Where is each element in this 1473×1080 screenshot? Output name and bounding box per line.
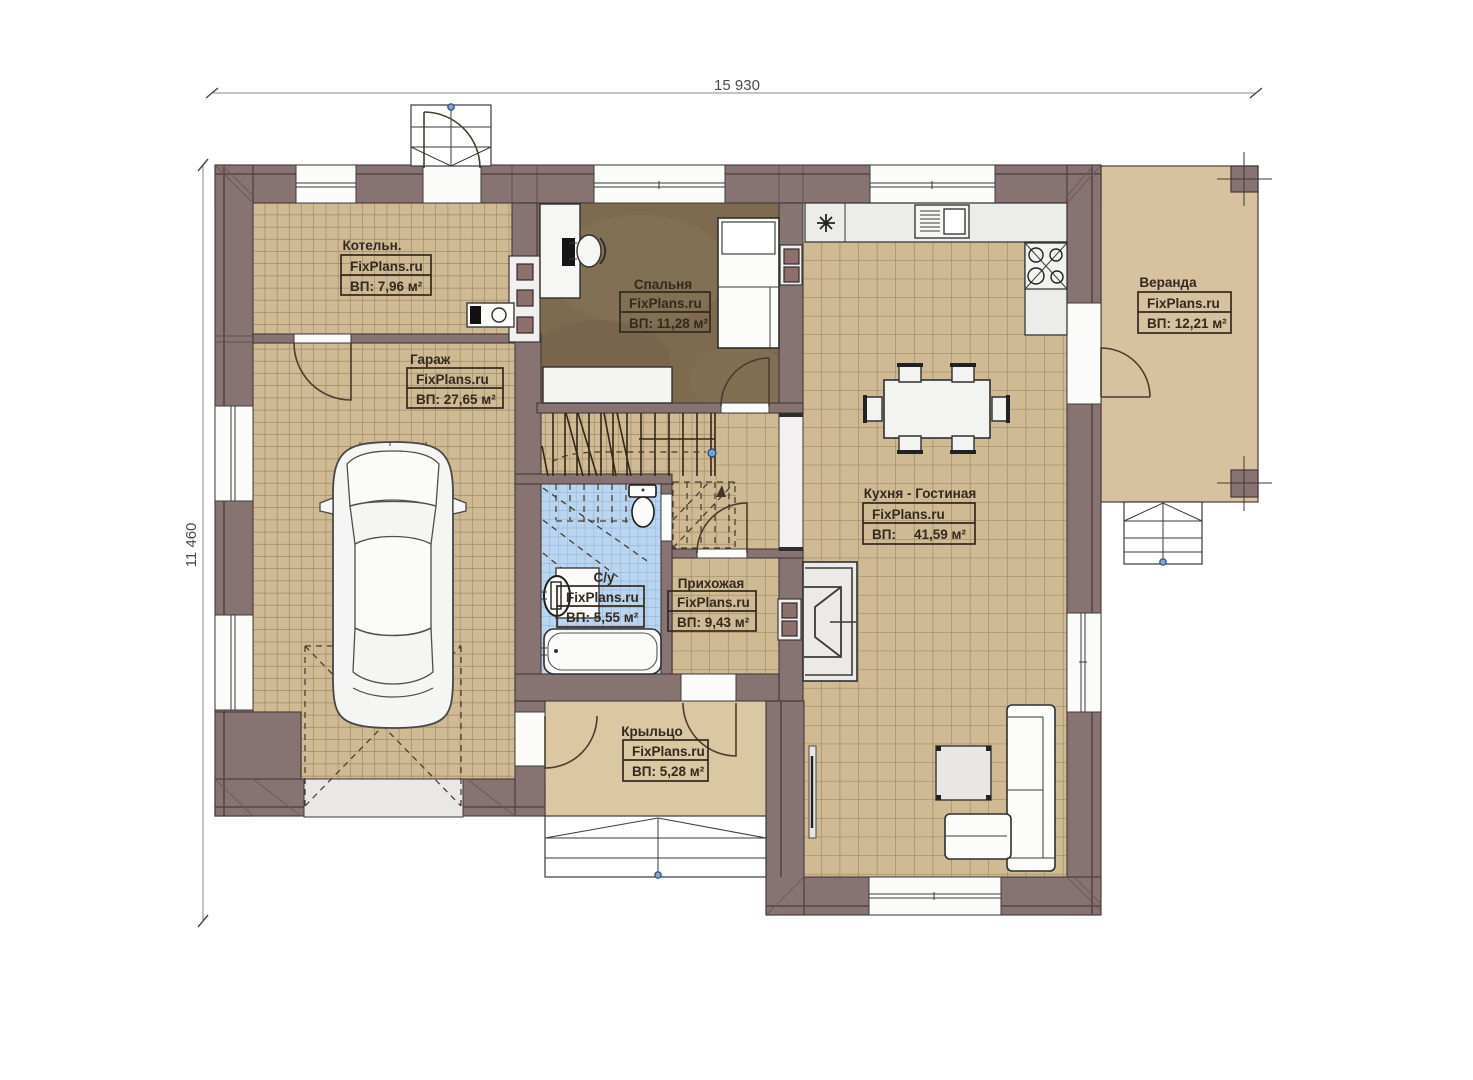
svg-text:FixPlans.ru: FixPlans.ru (566, 590, 639, 605)
svg-text:ВП: 12,21 м²: ВП: 12,21 м² (1147, 316, 1227, 331)
svg-text:FixPlans.ru: FixPlans.ru (416, 372, 489, 387)
svg-text:С/у: С/у (593, 570, 615, 585)
svg-text:ВП: 5,28 м²: ВП: 5,28 м² (632, 764, 705, 779)
svg-text:ВП: 9,43 м²: ВП: 9,43 м² (677, 615, 750, 630)
svg-text:ВП: 27,65 м²: ВП: 27,65 м² (416, 392, 496, 407)
svg-text:FixPlans.ru: FixPlans.ru (350, 259, 423, 274)
svg-text:Прихожая: Прихожая (678, 576, 745, 591)
svg-text:ВП: 11,28 м²: ВП: 11,28 м² (629, 316, 708, 331)
svg-text:FixPlans.ru: FixPlans.ru (677, 595, 750, 610)
svg-text:Крыльцо: Крыльцо (621, 724, 682, 739)
svg-text:Веранда: Веранда (1139, 275, 1197, 290)
svg-text:Спальня: Спальня (634, 277, 692, 292)
svg-text:Котельн.: Котельн. (342, 238, 401, 253)
svg-text:ВП: 7,96 м²: ВП: 7,96 м² (350, 279, 423, 294)
svg-text:15 930: 15 930 (714, 77, 760, 94)
svg-text:FixPlans.ru: FixPlans.ru (632, 744, 705, 759)
svg-text:Гараж: Гараж (410, 352, 451, 367)
svg-text:FixPlans.ru: FixPlans.ru (629, 296, 702, 311)
svg-text:ВП: 5,55 м²: ВП: 5,55 м² (566, 610, 639, 625)
svg-text:ВП:41,59 м²: ВП:41,59 м² (872, 527, 967, 542)
svg-text:FixPlans.ru: FixPlans.ru (1147, 296, 1220, 311)
svg-text:FixPlans.ru: FixPlans.ru (872, 507, 945, 522)
svg-text:11 460: 11 460 (183, 523, 200, 568)
svg-text:Кухня - Гостиная: Кухня - Гостиная (864, 486, 976, 501)
